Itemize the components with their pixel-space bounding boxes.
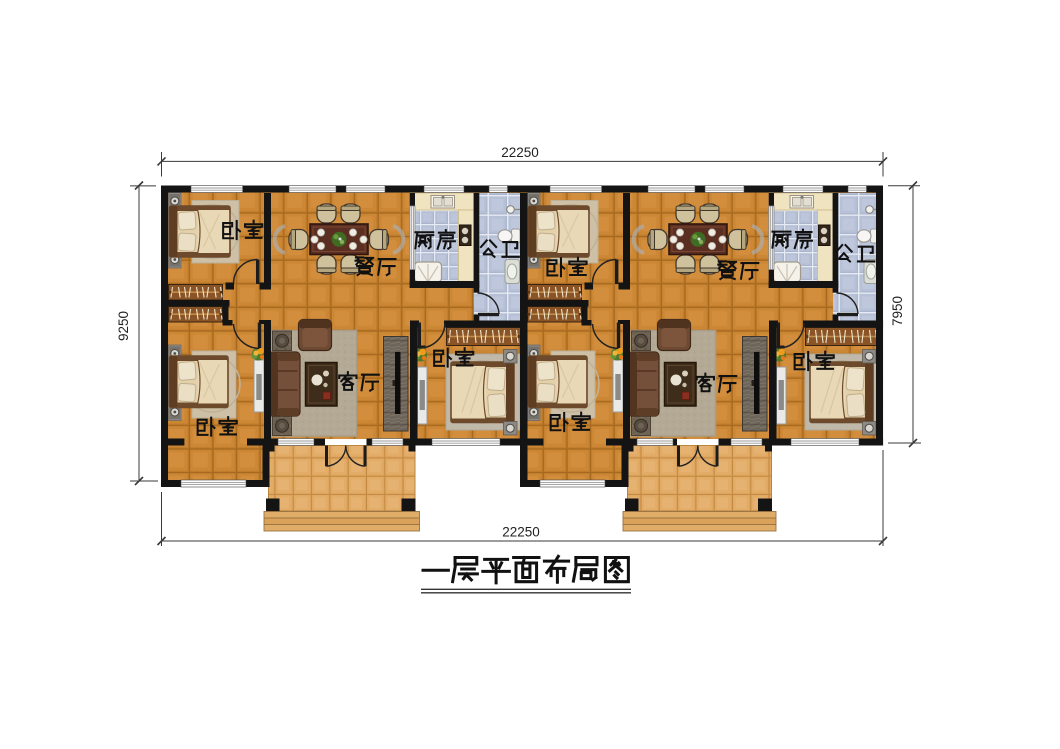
svg-text:22250: 22250 <box>501 145 539 160</box>
svg-text:7950: 7950 <box>890 296 905 326</box>
svg-text:22250: 22250 <box>502 525 540 540</box>
svg-text:9250: 9250 <box>116 311 131 341</box>
